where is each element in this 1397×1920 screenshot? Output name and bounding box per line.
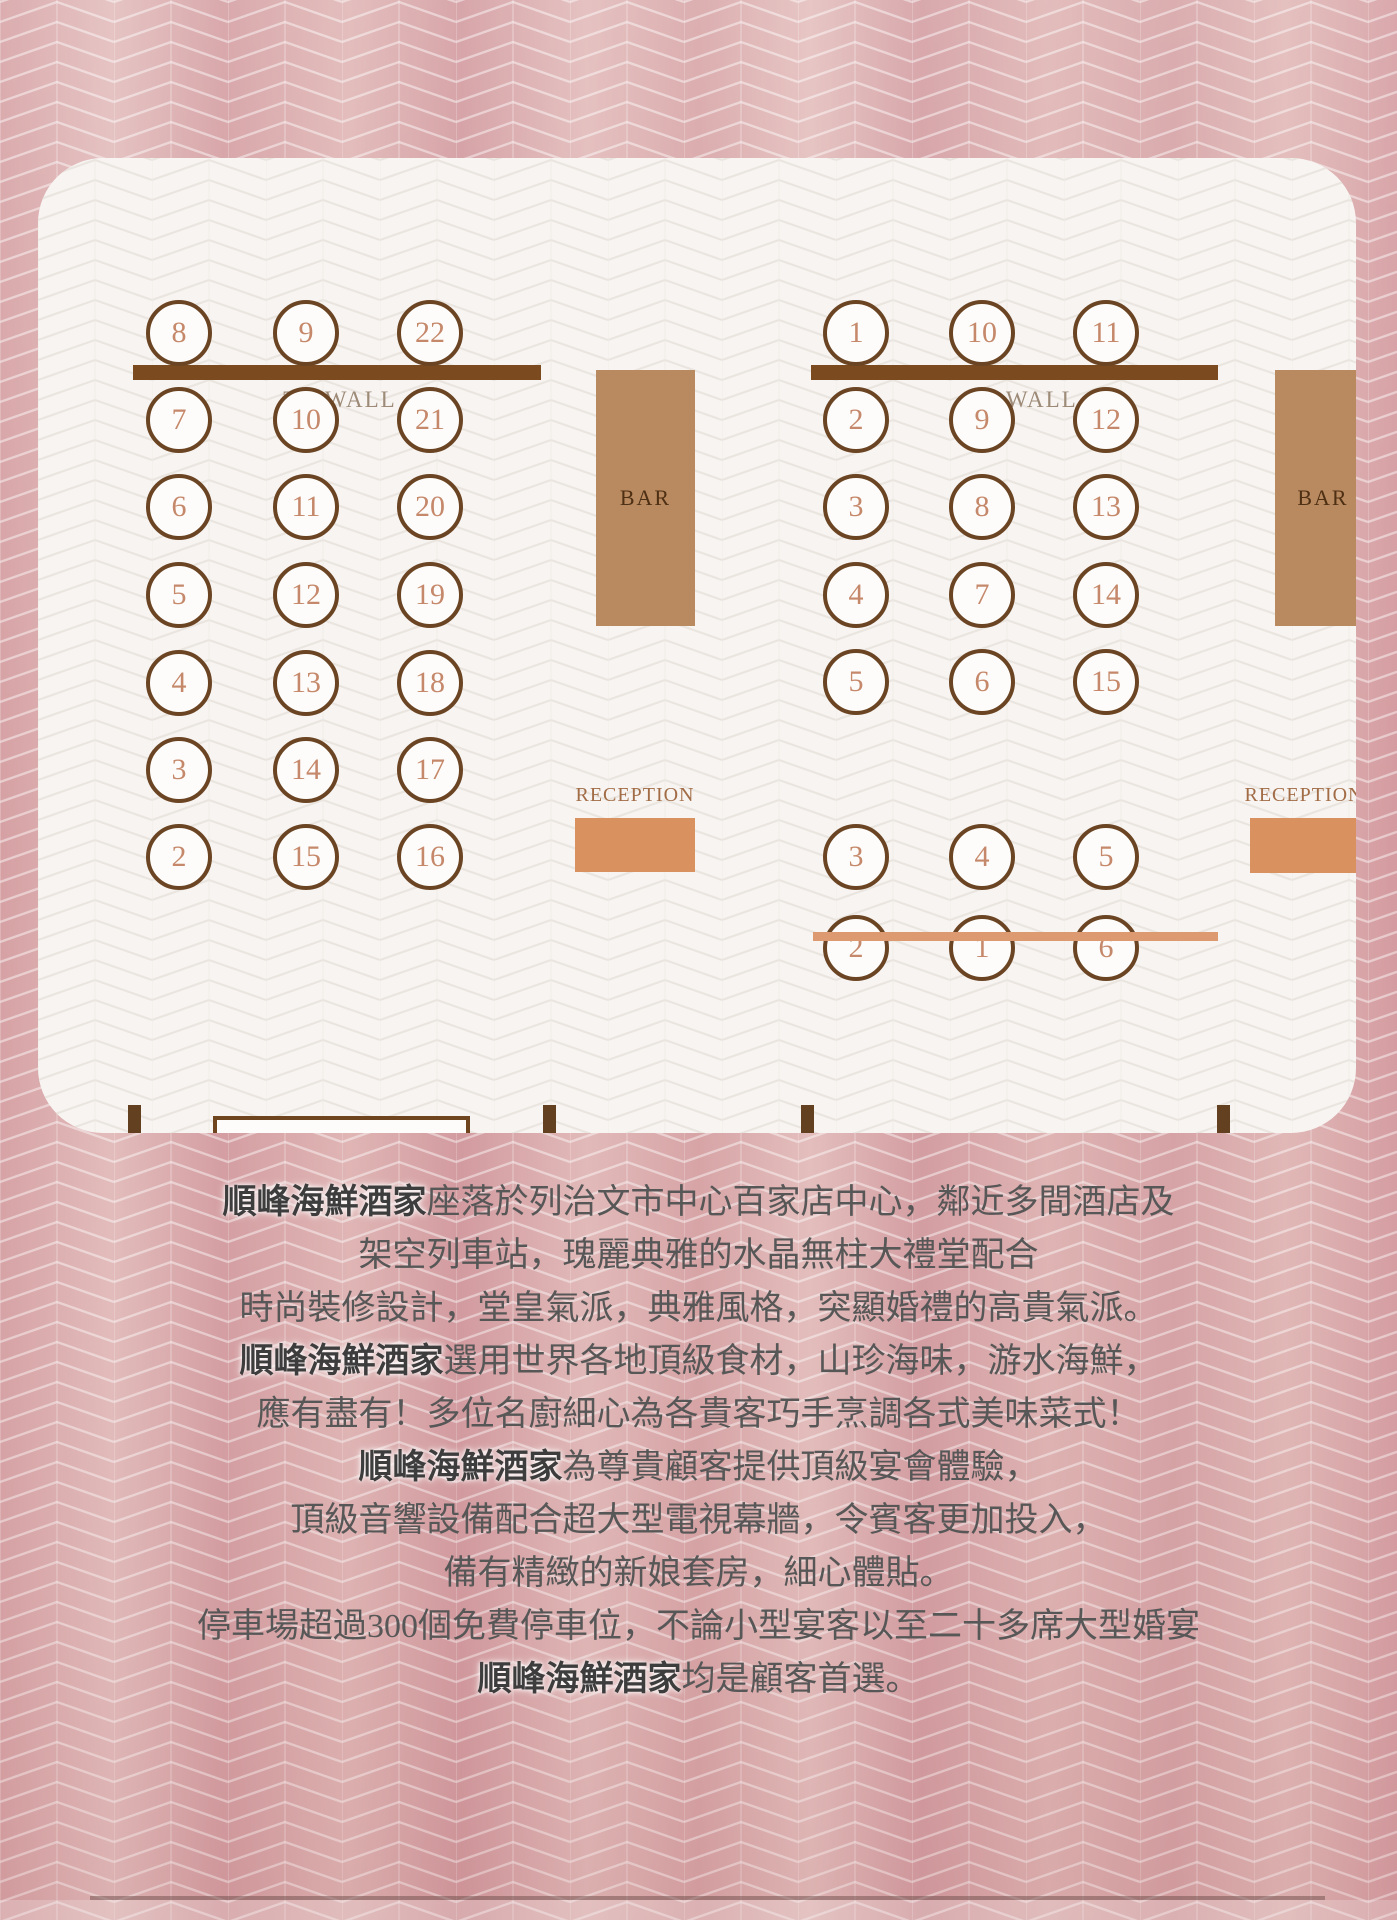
table-circle: 5	[823, 649, 889, 715]
table-number: 4	[849, 580, 864, 610]
tv-post	[801, 1105, 814, 1133]
table-circle: 9	[949, 387, 1015, 453]
description-text: 架空列車站，瑰麗典雅的水晶無柱大禮堂配合	[359, 1237, 1039, 1274]
table-number: 7	[975, 580, 990, 610]
table-circle: 6	[146, 474, 212, 540]
description-line: 停車場超過300個免費停車位，不論小型宴客以至二十多席大型婚宴	[0, 1600, 1397, 1653]
scan-edge-strip	[0, 1900, 1397, 1920]
table-number: 1	[849, 318, 864, 348]
table-number: 2	[849, 405, 864, 435]
brand-name: 順峰海鮮酒家	[478, 1661, 682, 1698]
table-number: 6	[172, 492, 187, 522]
brand-name: 順峰海鮮酒家	[240, 1343, 444, 1380]
description-text: 座落於列治文市中心百家店中心，鄰近多間酒店及	[427, 1184, 1175, 1221]
reception-desk	[1250, 818, 1356, 873]
table-number: 13	[291, 668, 321, 698]
reception-label: RECEPTION	[1204, 784, 1356, 807]
table-circle: 7	[146, 387, 212, 453]
table-circle: 11	[273, 474, 339, 540]
description-text: 時尚裝修設計，堂皇氣派，典雅風格，突顯婚禮的高貴氣派。	[240, 1290, 1158, 1327]
table-circle: 21	[397, 387, 463, 453]
table-circle: 2	[146, 824, 212, 890]
table-circle: 9	[273, 300, 339, 366]
table-circle: 15	[273, 824, 339, 890]
table-number: 18	[415, 668, 445, 698]
floor-plan-panel: TV WALL BAR 8765432910111213141522212019…	[38, 158, 1356, 1133]
description-line: 架空列車站，瑰麗典雅的水晶無柱大禮堂配合	[0, 1229, 1397, 1282]
table-number: 3	[849, 492, 864, 522]
tv-post	[543, 1105, 556, 1133]
table-number: 5	[172, 580, 187, 610]
table-circle: 10	[273, 387, 339, 453]
bar-area: BAR	[1275, 370, 1356, 626]
table-circle: 6	[1073, 915, 1139, 981]
table-number: 2	[172, 842, 187, 872]
table-circle: 16	[397, 824, 463, 890]
description-line: 順峰海鮮酒家均是顧客首選。	[0, 1653, 1397, 1706]
table-circle: 13	[1073, 474, 1139, 540]
description-text: 頂級音響設備配合超大型電視幕牆，令賓客更加投入，	[291, 1502, 1107, 1539]
table-circle: 1	[949, 915, 1015, 981]
description-line: 順峰海鮮酒家座落於列治文市中心百家店中心，鄰近多間酒店及	[0, 1176, 1397, 1229]
brand-name: 順峰海鮮酒家	[223, 1184, 427, 1221]
table-circle: 5	[146, 562, 212, 628]
table-number: 6	[975, 667, 990, 697]
table-number: 21	[415, 405, 445, 435]
description-line: 順峰海鮮酒家為尊貴顧客提供頂級宴會體驗，	[0, 1441, 1397, 1494]
table-number: 15	[291, 842, 321, 872]
table-number: 5	[1099, 842, 1114, 872]
tv-wall-bar	[133, 365, 541, 380]
table-number: 10	[967, 318, 997, 348]
table-circle: 14	[1073, 562, 1139, 628]
table-circle: 10	[949, 300, 1015, 366]
table-circle: 3	[146, 737, 212, 803]
reception-desk	[575, 818, 695, 872]
table-number: 22	[415, 318, 445, 348]
table-circle: 11	[1073, 300, 1139, 366]
table-number: 12	[1091, 405, 1121, 435]
reception-label: RECEPTION	[535, 784, 735, 807]
table-circle: 5	[1073, 824, 1139, 890]
table-number: 9	[299, 318, 314, 348]
tv-wall-bar	[811, 365, 1218, 380]
description-line: 頂級音響設備配合超大型電視幕牆，令賓客更加投入，	[0, 1494, 1397, 1547]
table-number: 14	[291, 755, 321, 785]
table-circle: 8	[146, 300, 212, 366]
table-circle: 20	[397, 474, 463, 540]
description-text: 均是顧客首選。	[682, 1661, 920, 1698]
table-circle: 12	[1073, 387, 1139, 453]
table-circle: 4	[823, 562, 889, 628]
table-circle: 6	[949, 649, 1015, 715]
table-number: 19	[415, 580, 445, 610]
brand-name: 順峰海鮮酒家	[359, 1449, 563, 1486]
table-circle: 12	[273, 562, 339, 628]
table-number: 17	[415, 755, 445, 785]
description-line: 時尚裝修設計，堂皇氣派，典雅風格，突顯婚禮的高貴氣派。	[0, 1282, 1397, 1335]
table-circle: 18	[397, 650, 463, 716]
description-text: 停車場超過300個免費停車位，不論小型宴客以至二十多席大型婚宴	[197, 1608, 1200, 1645]
description-text: 備有精緻的新娘套房，細心體貼。	[444, 1555, 954, 1592]
table-number: 5	[849, 667, 864, 697]
table-number: 3	[172, 755, 187, 785]
table-number: 14	[1091, 580, 1121, 610]
table-number: 11	[292, 492, 321, 522]
description-text: 選用世界各地頂級食材，山珍海味，游水海鮮，	[444, 1343, 1158, 1380]
table-circle: 2	[823, 915, 889, 981]
table-circle: 8	[949, 474, 1015, 540]
table-circle: 14	[273, 737, 339, 803]
table-number: 11	[1092, 318, 1121, 348]
table-circle: 3	[823, 824, 889, 890]
restaurant-description: 順峰海鮮酒家座落於列治文市中心百家店中心，鄰近多間酒店及架空列車站，瑰麗典雅的水…	[0, 1176, 1397, 1706]
table-circle: 22	[397, 300, 463, 366]
description-line: 應有盡有！多位名廚細心為各貴客巧手烹調各式美味菜式！	[0, 1388, 1397, 1441]
table-number: 7	[172, 405, 187, 435]
tv-post	[1217, 1105, 1230, 1133]
description-line: 順峰海鮮酒家選用世界各地頂級食材，山珍海味，游水海鮮，	[0, 1335, 1397, 1388]
table-number: 9	[975, 405, 990, 435]
table-number: 20	[415, 492, 445, 522]
table-number: 15	[1091, 667, 1121, 697]
description-text: 應有盡有！多位名廚細心為各貴客巧手烹調各式美味菜式！	[257, 1396, 1141, 1433]
bar-label: BAR	[620, 485, 671, 511]
table-circle: 19	[397, 562, 463, 628]
table-circle: 2	[823, 387, 889, 453]
description-line: 備有精緻的新娘套房，細心體貼。	[0, 1547, 1397, 1600]
table-number: 10	[291, 405, 321, 435]
table-circle: 13	[273, 650, 339, 716]
table-number: 4	[172, 668, 187, 698]
table-circle: 3	[823, 474, 889, 540]
bar-area: BAR	[596, 370, 695, 626]
table-circle: 1	[823, 300, 889, 366]
table-circle: 17	[397, 737, 463, 803]
table-number: 16	[415, 842, 445, 872]
bar-label: BAR	[1297, 485, 1348, 511]
description-text: 為尊貴顧客提供頂級宴會體驗，	[563, 1449, 1039, 1486]
table-number: 8	[172, 318, 187, 348]
table-number: 4	[975, 842, 990, 872]
table-number: 12	[291, 580, 321, 610]
table-circle: 15	[1073, 649, 1139, 715]
panel-texture	[38, 158, 1356, 1133]
room-divider-line	[813, 932, 1218, 941]
table-circle: 4	[146, 650, 212, 716]
table-circle: 7	[949, 562, 1015, 628]
table-number: 3	[849, 842, 864, 872]
tv-post	[128, 1105, 141, 1133]
table-number: 13	[1091, 492, 1121, 522]
head-table: HEAD TABLE	[213, 1116, 470, 1133]
table-circle: 4	[949, 824, 1015, 890]
table-number: 8	[975, 492, 990, 522]
